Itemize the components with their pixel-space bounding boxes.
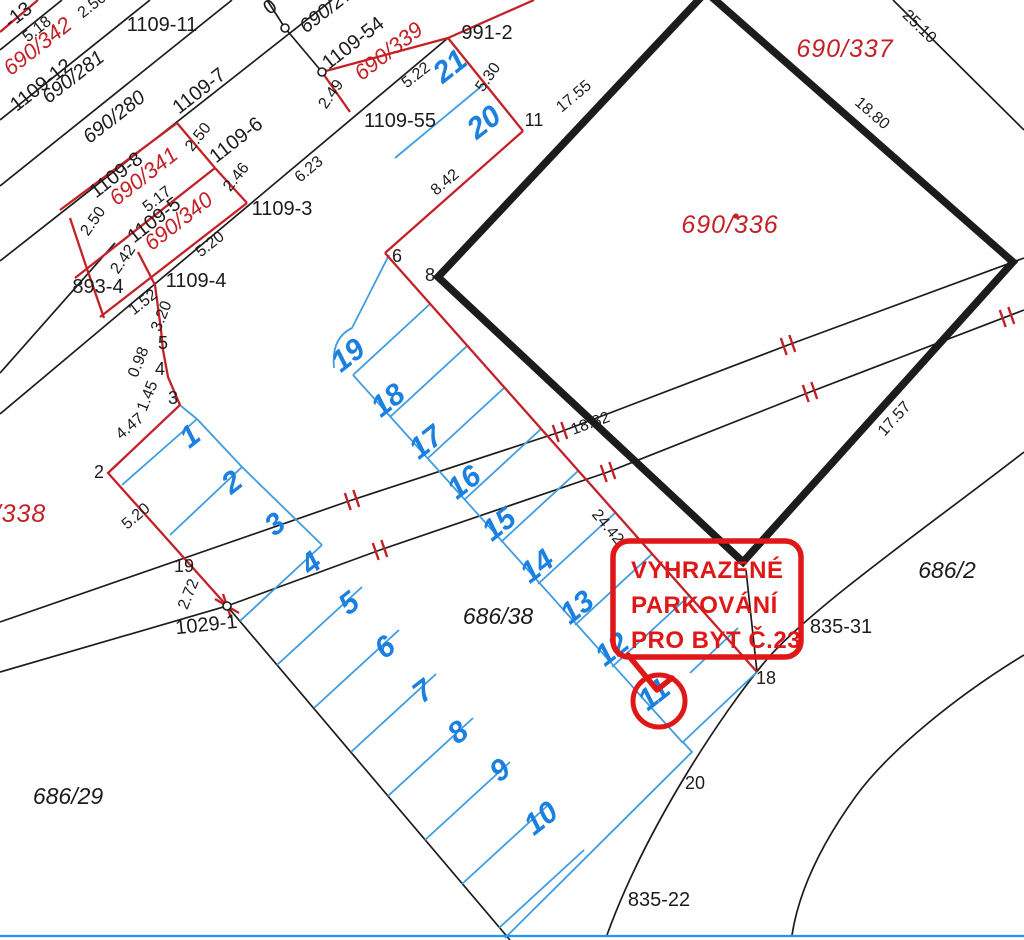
parcel-boundary-line-7 <box>285 28 322 72</box>
map-label-686-38-52: 686/38 <box>463 603 534 629</box>
parcel-boundary-line-5 <box>0 243 115 373</box>
map-label-0-98-25: 0.98 <box>125 345 152 380</box>
map-label-690-337-63: 690/337 <box>796 35 893 63</box>
survey-point-circle-0 <box>281 24 289 32</box>
parking-stall-line-13 <box>499 850 584 928</box>
parking-stall-number-4: 4 <box>294 545 329 582</box>
parking-stall-number-15: 15 <box>476 500 524 547</box>
cadastral-map-view[interactable]: -132.5005.181109-111109-12690/281690/280… <box>0 0 1024 940</box>
map-label-2-30: 2 <box>94 462 104 482</box>
map-label-690-336-64: 690/336 <box>681 211 778 239</box>
map-label-686-2-54: 686/2 <box>918 557 976 583</box>
map-label-1109-6-10: 1109-6 <box>206 113 267 168</box>
map-label-8-46: 8 <box>425 265 435 285</box>
callout-text-line-3: PRO BYT Č.23 <box>631 626 801 654</box>
survey-point-circle-1 <box>318 68 326 76</box>
map-label-2-49-43: 2.49 <box>315 77 347 112</box>
map-label-2-50-16: 2.50 <box>77 204 109 239</box>
parking-stall-line-14 <box>353 304 430 375</box>
map-label-5-20-18: 5.20 <box>193 228 228 261</box>
map-label-5-20-31: 5.20 <box>119 500 154 533</box>
map-label-338-65: /338 <box>0 500 46 528</box>
parking-stall-number-20: 20 <box>460 99 508 146</box>
map-label-19-32: 19 <box>174 556 194 576</box>
survey-point-circle-2 <box>223 602 231 610</box>
parking-stall-number-14: 14 <box>514 543 561 590</box>
parking-stall-line-1 <box>181 406 197 419</box>
parking-stall-number-19: 19 <box>325 332 372 379</box>
map-label-5-30-39: 5.30 <box>472 60 504 95</box>
map-label-1029-1-34: 1029-1 <box>174 611 238 639</box>
parking-stall-number-18: 18 <box>365 377 412 424</box>
parking-stall-number-6: 6 <box>368 629 402 665</box>
map-label-991-2-38: 991-2 <box>461 22 512 44</box>
map-label-20-57: 20 <box>685 773 705 793</box>
map-label-6-45: 6 <box>392 246 402 266</box>
callout-text-line-1: VYHRAZENÉ <box>631 556 784 584</box>
map-label-6-23-12: 6.23 <box>292 153 327 186</box>
map-label-8-42-42: 8.42 <box>428 166 463 199</box>
map-label-3-28: 3 <box>168 388 178 408</box>
map-label-1109-11-4: 1109-11 <box>127 14 197 36</box>
parking-stall-number-9: 9 <box>483 752 517 788</box>
parking-stall-number-13: 13 <box>554 584 601 631</box>
map-label-2-46-11: 2.46 <box>220 160 253 195</box>
callout-tail <box>628 655 672 690</box>
map-label-1109-7-8: 1109-7 <box>169 64 230 119</box>
map-label-893-4-21: 893-4 <box>72 276 123 298</box>
map-label-2-72-33: 2.72 <box>175 577 202 612</box>
map-label-1109-3-19: 1109-3 <box>252 198 313 220</box>
map-label-1109-4-20: 1109-4 <box>166 270 227 292</box>
map-label-4-26: 4 <box>155 359 165 379</box>
map-canvas: -132.5005.181109-111109-12690/281690/280… <box>0 0 1024 940</box>
building-outline <box>438 0 1013 562</box>
parking-stall-number-5: 5 <box>332 585 367 622</box>
parking-stall-number-16: 16 <box>441 459 488 506</box>
map-label-17-55-41: 17.55 <box>553 77 595 116</box>
map-label-2-50-1: 2.50 <box>75 0 110 22</box>
parking-stall-number-10: 10 <box>518 795 565 842</box>
map-label-18-56: 18 <box>756 668 776 688</box>
parking-stall-number-17: 17 <box>403 418 451 465</box>
map-label-835-22-58: 835-22 <box>628 889 690 911</box>
map-label-4-47-29: 4.47 <box>113 410 148 443</box>
map-label-1-45-27: 1.45 <box>134 379 161 414</box>
map-label-835-31-55: 835-31 <box>810 616 872 638</box>
map-label-5-24: 5 <box>158 333 168 353</box>
map-label-11-40: 11 <box>525 110 544 130</box>
parcel-boundary-line-9 <box>227 606 510 940</box>
callout-text-line-2: PARKOVÁNÍ <box>631 591 779 619</box>
map-label-1109-55-44: 1109-55 <box>364 110 436 132</box>
map-label-686-29-53: 686/29 <box>33 783 104 809</box>
map-label-690-280-7: 690/280 <box>79 86 150 148</box>
road-curve-1 <box>792 655 1024 935</box>
parking-stall-number-7: 7 <box>406 673 441 710</box>
